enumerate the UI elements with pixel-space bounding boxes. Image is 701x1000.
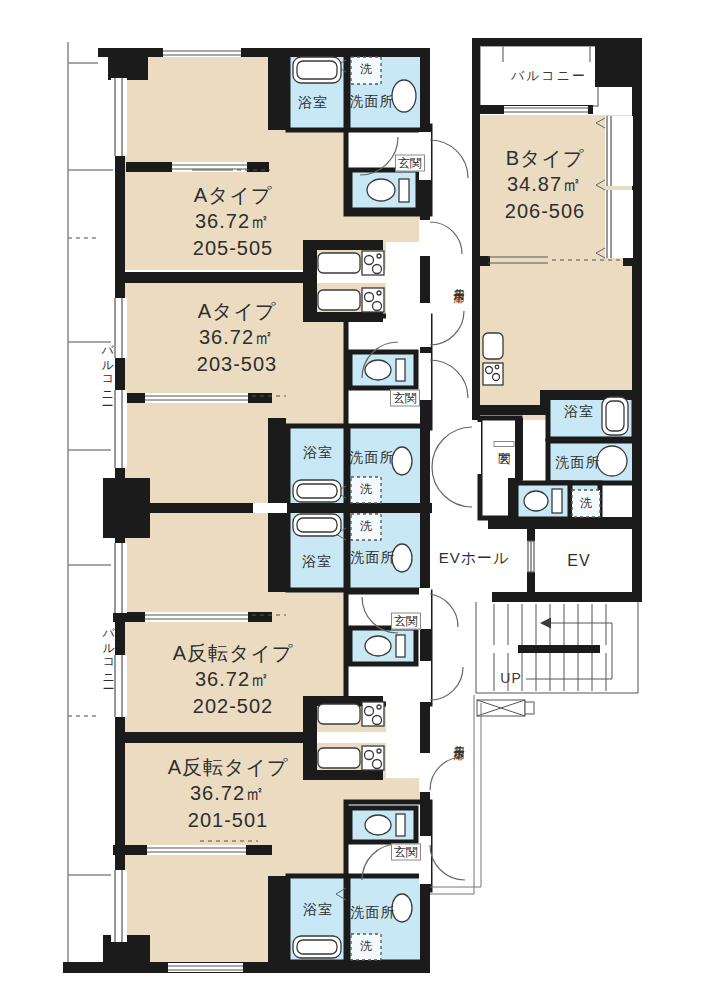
bath-label-201: 浴室 <box>303 902 333 917</box>
unit-area: 36.72㎡ <box>168 781 289 807</box>
unit-area: 36.72㎡ <box>193 209 273 235</box>
unit-area: 36.72㎡ <box>197 325 277 351</box>
unit-label-201: A反転タイプ 36.72㎡ 201-501 <box>168 754 289 833</box>
unit-rooms: 205-505 <box>193 235 273 261</box>
ev-hall-label: EVホール <box>439 550 510 567</box>
floor-plan: Aタイプ 36.72㎡ 205-505 Aタイプ 36.72㎡ 203-503 … <box>0 0 701 1000</box>
entrance-label-205: 玄関 <box>395 155 425 172</box>
stairs-arrow-head <box>540 618 551 629</box>
laundry-label-203: 洗 <box>360 483 372 496</box>
bath-label-206: 浴室 <box>564 404 594 419</box>
unit-rooms: 206-506 <box>505 198 585 224</box>
washroom-label-203: 洗面所 <box>350 450 395 465</box>
unit-type: A反転タイプ <box>168 754 289 780</box>
bath-label-203: 浴室 <box>303 445 333 460</box>
floor-plan-canvas <box>0 0 701 1000</box>
unit-type: Aタイプ <box>193 182 273 208</box>
laundry-label-201: 洗 <box>360 940 372 953</box>
washroom-label-206: 洗面所 <box>556 455 601 470</box>
laundry-label-206: 洗 <box>580 497 592 510</box>
washroom-label-202: 洗面所 <box>351 550 396 565</box>
entrance-label-201: 玄関 <box>391 844 421 861</box>
bath-label-202: 浴室 <box>302 554 332 569</box>
balcony-label-left-2: バルコニー <box>101 620 114 685</box>
washroom-label-205: 洗面所 <box>350 94 395 109</box>
unit-label-203: Aタイプ 36.72㎡ 203-503 <box>197 298 277 377</box>
up-label: UP <box>500 671 521 686</box>
shared-corridor-label-1: 共用廊下 <box>453 279 465 287</box>
shared-corridor-label-2: 共用廊下 <box>453 736 465 744</box>
unit-rooms: 201-501 <box>168 807 289 833</box>
ev-label: EV <box>567 552 590 570</box>
balcony-label-left-1: バルコニー <box>100 337 113 402</box>
entrance-label-203: 玄関 <box>390 390 420 407</box>
balcony-label-top: バルコニー <box>511 69 587 83</box>
entrance-label-202: 玄関 <box>391 613 421 630</box>
unit-type: Bタイプ <box>505 145 585 171</box>
entrance-label-206: 玄関 <box>494 441 515 447</box>
corridor-outline <box>430 695 481 894</box>
unit-area: 34.87㎡ <box>505 172 585 198</box>
washroom-label-201: 洗面所 <box>351 905 396 920</box>
elevator-door <box>528 541 534 572</box>
unit-type: A反転タイプ <box>173 640 294 666</box>
unit-rooms: 202-502 <box>173 693 294 719</box>
laundry-label-202: 洗 <box>360 520 372 533</box>
unit-rooms: 203-503 <box>197 351 277 377</box>
unit-type: Aタイプ <box>197 298 277 324</box>
unit-label-206: Bタイプ 34.87㎡ 206-506 <box>505 145 585 224</box>
bath-label-205: 浴室 <box>298 95 328 110</box>
laundry-label-205: 洗 <box>360 63 372 76</box>
shaft-x-box <box>477 700 534 716</box>
unit-label-205: Aタイプ 36.72㎡ 205-505 <box>193 182 273 261</box>
unit-area: 36.72㎡ <box>173 667 294 693</box>
unit-label-202: A反転タイプ 36.72㎡ 202-502 <box>173 640 294 719</box>
